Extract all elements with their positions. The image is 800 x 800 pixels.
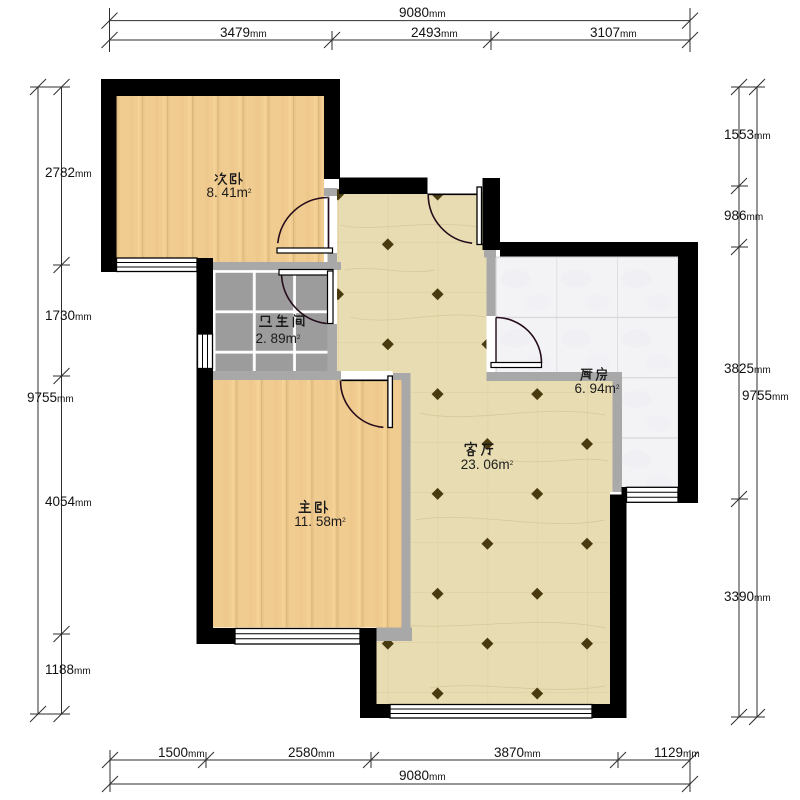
svg-text:8. 41m2: 8. 41m2 — [207, 185, 252, 200]
svg-text:11. 58m2: 11. 58m2 — [294, 514, 346, 529]
svg-text:23. 06m2: 23. 06m2 — [461, 457, 514, 472]
svg-text:6. 94m2: 6. 94m2 — [575, 381, 620, 396]
svg-text:2. 89m2: 2. 89m2 — [256, 331, 301, 346]
